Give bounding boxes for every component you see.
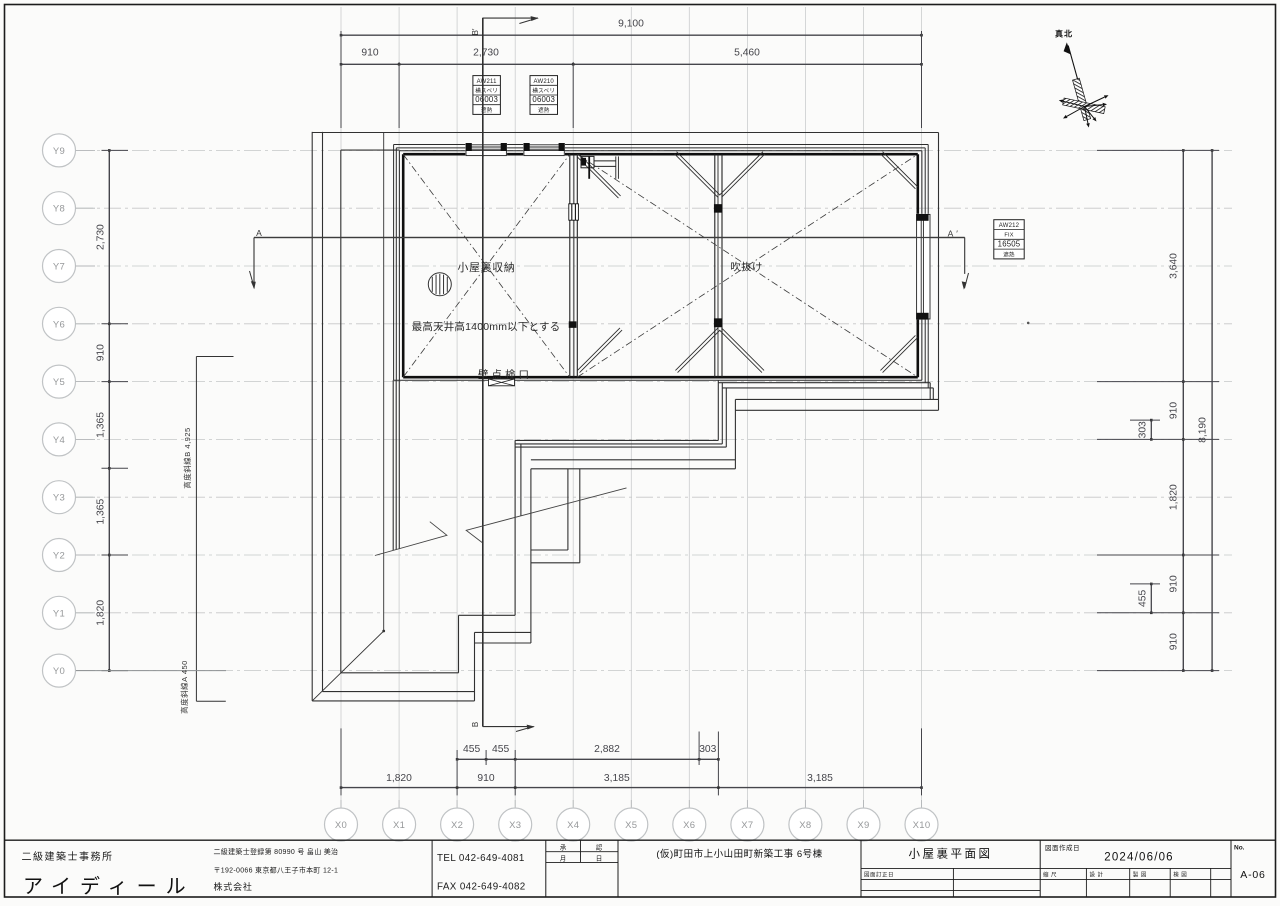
svg-text:日: 日: [596, 854, 603, 862]
svg-text:X10: X10: [913, 820, 931, 831]
svg-text:X7: X7: [741, 820, 753, 831]
svg-text:FIX: FIX: [1004, 233, 1013, 239]
svg-text:Y5: Y5: [53, 377, 65, 388]
svg-text:910: 910: [1169, 633, 1180, 650]
svg-text:A-06: A-06: [1240, 869, 1265, 881]
svg-text:X1: X1: [393, 820, 405, 831]
svg-text:Y0: Y0: [53, 666, 65, 677]
svg-text:月: 月: [560, 854, 567, 862]
svg-text:3,185: 3,185: [604, 773, 630, 784]
svg-text:高度斜線B 4,925: 高度斜線B 4,925: [182, 427, 192, 488]
svg-text:アイディール: アイディール: [23, 875, 195, 898]
svg-text:二級建築士登録第 80990 号 畠山 美治: 二級建築士登録第 80990 号 畠山 美治: [214, 847, 339, 856]
svg-text:認: 認: [596, 843, 603, 852]
svg-text:最高天井高1400mm以下とする: 最高天井高1400mm以下とする: [412, 320, 561, 333]
svg-text:16505: 16505: [998, 240, 1021, 249]
svg-text:遮熱: 遮熱: [1003, 250, 1015, 258]
svg-text:Y9: Y9: [53, 146, 65, 157]
svg-text:3,640: 3,640: [1169, 253, 1180, 279]
svg-text:455: 455: [1138, 590, 1149, 607]
svg-text:5,460: 5,460: [734, 48, 760, 59]
svg-text:1,820: 1,820: [1169, 484, 1180, 510]
svg-text:設 計: 設 計: [1090, 870, 1104, 878]
svg-text:TEL 042-649-4081: TEL 042-649-4081: [437, 853, 525, 864]
svg-text:AW211: AW211: [477, 79, 497, 85]
svg-text:高度斜線A 450: 高度斜線A 450: [179, 660, 189, 714]
svg-text:小屋裏平面図: 小屋裏平面図: [909, 847, 993, 861]
svg-text:9,100: 9,100: [618, 19, 644, 30]
svg-text:横スベリ: 横スベリ: [532, 86, 555, 94]
svg-text:図面訂正日: 図面訂正日: [864, 870, 894, 878]
svg-text:製 図: 製 図: [1133, 870, 1147, 878]
svg-text:〒192-0066 東京都八王子市本町 12-1: 〒192-0066 東京都八王子市本町 12-1: [214, 866, 339, 875]
svg-text:1,820: 1,820: [96, 600, 107, 626]
svg-text:B: B: [471, 722, 480, 727]
svg-text:(仮)町田市上小山田町新築工事 6号棟: (仮)町田市上小山田町新築工事 6号棟: [656, 848, 822, 860]
svg-text:1,820: 1,820: [386, 773, 412, 784]
svg-text:910: 910: [477, 773, 494, 784]
svg-text:B′: B′: [471, 28, 480, 35]
svg-text:X3: X3: [509, 820, 521, 831]
svg-text:X4: X4: [567, 820, 579, 831]
svg-text:455: 455: [492, 744, 509, 755]
svg-text:2024/06/06: 2024/06/06: [1104, 852, 1174, 864]
svg-text:910: 910: [361, 48, 378, 59]
svg-text:横スベリ: 横スベリ: [475, 86, 498, 94]
svg-text:Y1: Y1: [53, 608, 65, 619]
svg-text:06003: 06003: [475, 95, 498, 104]
svg-text:X9: X9: [857, 820, 869, 831]
svg-text:Y2: Y2: [53, 551, 65, 562]
svg-text:A: A: [256, 228, 262, 238]
svg-text:455: 455: [463, 744, 480, 755]
svg-text:2,730: 2,730: [473, 48, 499, 59]
svg-text:Y7: Y7: [53, 262, 65, 273]
svg-text:No.: No.: [1234, 845, 1245, 852]
svg-text:遮熱: 遮熱: [538, 106, 550, 114]
svg-text:二級建築士事務所: 二級建築士事務所: [22, 850, 114, 863]
svg-text:Y6: Y6: [53, 319, 65, 330]
svg-text:910: 910: [1169, 575, 1180, 592]
svg-text:910: 910: [96, 344, 107, 361]
svg-text:Y3: Y3: [53, 493, 65, 504]
svg-text:303: 303: [699, 744, 716, 755]
svg-text:06003: 06003: [532, 95, 555, 104]
svg-text:3,185: 3,185: [807, 773, 833, 784]
svg-text:小屋裏収納: 小屋裏収納: [458, 260, 516, 274]
svg-text:吹抜け: 吹抜け: [730, 261, 762, 274]
svg-text:X6: X6: [683, 820, 695, 831]
svg-text:1,365: 1,365: [96, 412, 107, 438]
svg-text:X2: X2: [451, 820, 463, 831]
svg-text:910: 910: [1169, 402, 1180, 419]
svg-text:AW210: AW210: [534, 79, 555, 85]
svg-text:2,882: 2,882: [594, 744, 620, 755]
svg-text:X8: X8: [799, 820, 811, 831]
svg-text:1,365: 1,365: [96, 498, 107, 524]
svg-text:縮 尺: 縮 尺: [1043, 870, 1057, 878]
svg-text:X0: X0: [335, 820, 347, 831]
svg-text:2,730: 2,730: [96, 224, 107, 250]
svg-text:真北: 真北: [1055, 29, 1073, 39]
svg-text:X5: X5: [625, 820, 637, 831]
svg-text:株式会社: 株式会社: [214, 881, 253, 892]
svg-text:検 図: 検 図: [1173, 870, 1187, 878]
svg-text:303: 303: [1138, 421, 1149, 438]
svg-text:Y4: Y4: [53, 435, 65, 446]
svg-text:FAX 042-649-4082: FAX 042-649-4082: [437, 882, 526, 893]
svg-text:AW212: AW212: [999, 223, 1020, 229]
svg-text:承: 承: [560, 843, 567, 852]
svg-text:図面作成日: 図面作成日: [1045, 843, 1080, 852]
svg-text:Y8: Y8: [53, 204, 65, 215]
